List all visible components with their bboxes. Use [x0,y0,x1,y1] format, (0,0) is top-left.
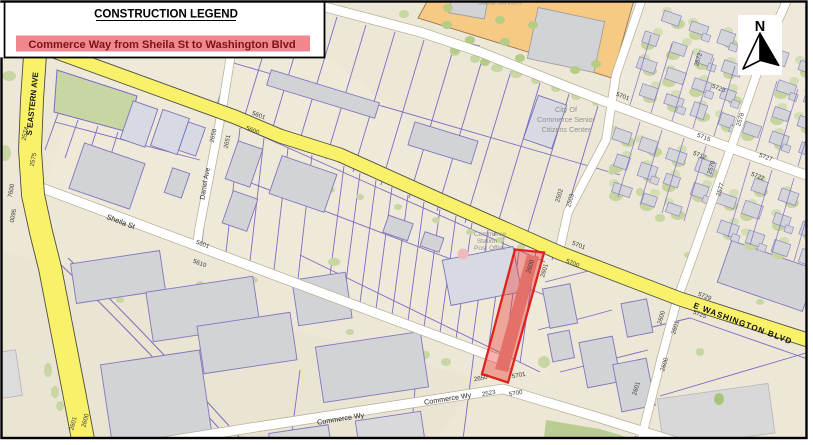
svg-text:Commerce Senior: Commerce Senior [537,115,596,124]
svg-text:Commerce Way from Sheila St to: Commerce Way from Sheila St to Washingto… [28,39,296,51]
svg-text:Post Office: Post Office [474,245,506,252]
svg-text:Commerce: Commerce [474,231,507,238]
svg-text:Citizens Center: Citizens Center [541,125,591,134]
svg-text:Station: Station [477,238,498,245]
svg-text:City Of: City Of [555,105,577,114]
svg-text:CONSTRUCTION LEGEND: CONSTRUCTION LEGEND [94,9,238,21]
